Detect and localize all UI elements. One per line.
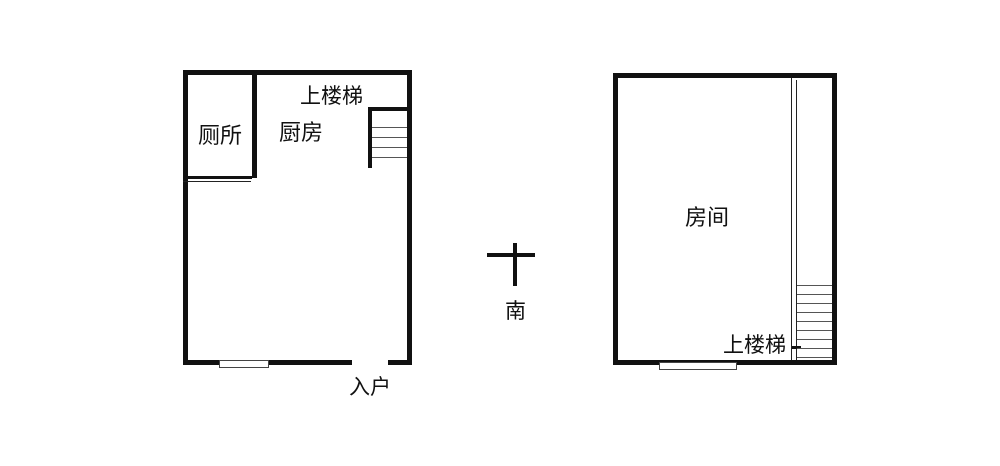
right-stair-tread [797, 339, 832, 340]
right-stair-tread [797, 294, 832, 295]
right-plan-wall-top [613, 73, 837, 78]
stair-rail-line-outer [791, 78, 792, 360]
right-stair-tread [797, 285, 832, 286]
stair-rail-line-inner [796, 80, 797, 360]
right-stair-tread [797, 348, 832, 349]
right-stair-tread [797, 330, 832, 331]
right-stair-tread [797, 357, 832, 358]
right-stair-tread [797, 321, 832, 322]
right-stair-tread [797, 303, 832, 304]
floor-plan-right: 房间 上楼梯 [0, 0, 1000, 466]
room-label: 房间 [685, 207, 729, 229]
floor-plan-page: { "page": { "background": "#ffffff", "li… [0, 0, 1000, 466]
right-plan-wall-left [613, 73, 618, 365]
right-plan-window [659, 362, 737, 370]
right-stairs-up-label: 上楼梯 [723, 335, 786, 356]
right-plan-wall-right [832, 73, 837, 365]
right-stair-tread [797, 312, 832, 313]
